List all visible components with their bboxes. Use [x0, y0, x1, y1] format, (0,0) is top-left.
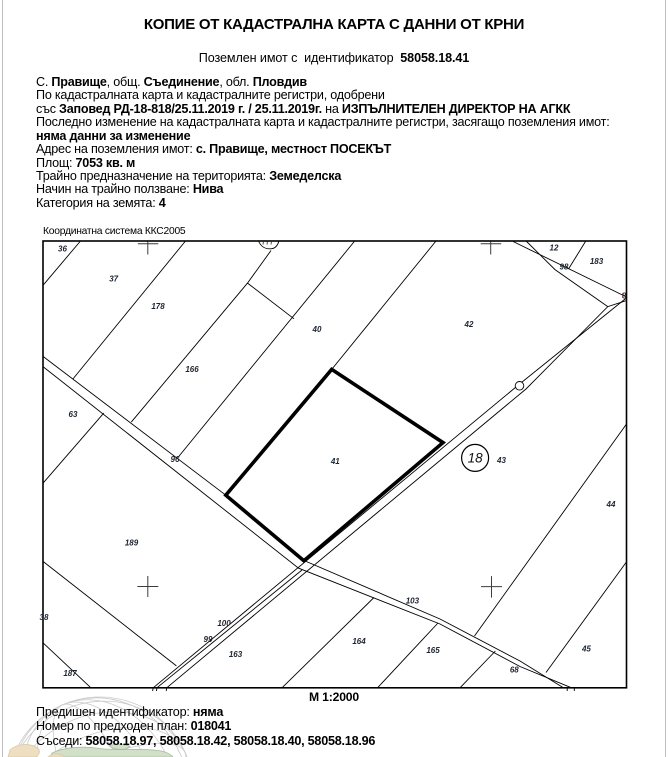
svg-text:42: 42: [464, 320, 474, 329]
svg-text:163: 163: [229, 650, 243, 659]
svg-text:164: 164: [352, 637, 366, 646]
svg-text:37: 37: [109, 275, 118, 284]
svg-text:36: 36: [58, 245, 67, 254]
svg-text:18: 18: [468, 451, 484, 466]
svg-text:187: 187: [63, 669, 77, 678]
svg-text:63: 63: [69, 410, 78, 419]
svg-text:100: 100: [217, 619, 231, 628]
svg-text:43: 43: [496, 456, 506, 465]
svg-text:103: 103: [406, 597, 420, 606]
svg-text:178: 178: [151, 302, 165, 311]
svg-text:44: 44: [606, 500, 616, 509]
svg-text:68: 68: [510, 665, 519, 674]
svg-text:12: 12: [550, 244, 559, 253]
svg-text:98: 98: [560, 263, 569, 272]
svg-text:38: 38: [40, 613, 49, 622]
svg-text:41: 41: [330, 457, 340, 466]
svg-text:99: 99: [204, 635, 213, 644]
svg-text:165: 165: [426, 646, 440, 655]
svg-text:40: 40: [312, 325, 322, 334]
svg-text:96: 96: [171, 455, 180, 464]
svg-text:189: 189: [125, 539, 139, 548]
svg-text:45: 45: [581, 644, 591, 653]
svg-text:183: 183: [590, 257, 604, 266]
svg-text:166: 166: [185, 365, 199, 374]
